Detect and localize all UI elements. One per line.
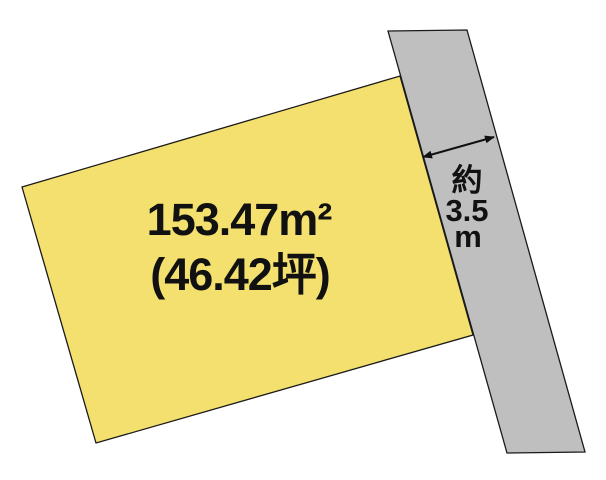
diagram-canvas: 153.47m² (46.42坪) 約 3.5 m: [0, 0, 606, 480]
parcel-area-sqm-label: 153.47m²: [147, 194, 333, 245]
parcel-area-tsubo-label: (46.42坪): [150, 249, 330, 300]
land-plot-diagram: 153.47m² (46.42坪) 約 3.5 m: [0, 0, 606, 480]
road-width-unit-label: m: [454, 219, 482, 254]
